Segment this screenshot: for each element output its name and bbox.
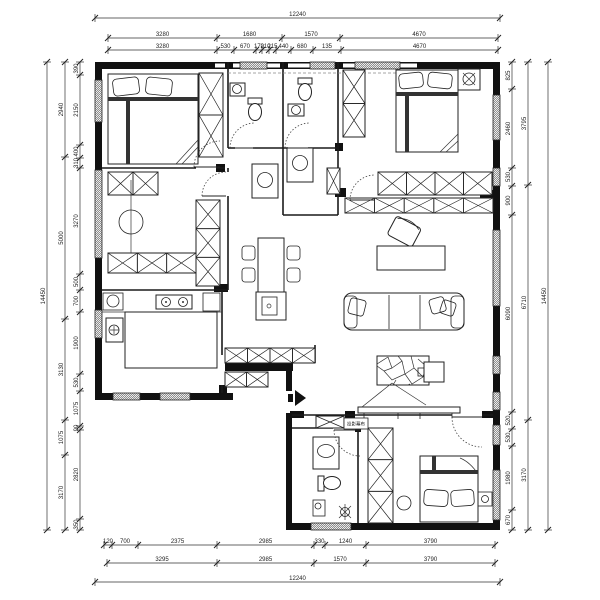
dim-label: 12240	[289, 12, 306, 18]
dimension-chain: 14450	[41, 59, 51, 533]
dim-label: 4670	[413, 44, 427, 50]
dimension-chain: 825246053090060905205301980670	[506, 59, 516, 533]
dim-label: 700	[74, 295, 80, 306]
dim-label: 135	[322, 44, 333, 50]
dim-label: 530	[220, 44, 231, 50]
dim-label: 2150	[74, 103, 80, 117]
bedroom-bottom-right	[397, 456, 492, 522]
dimension-chain: 1207002375298533012403790	[101, 539, 498, 549]
dim-label: 825	[506, 70, 512, 81]
dim-label: 670	[240, 44, 251, 50]
dimension-chain: 29405000313010753170	[59, 59, 69, 533]
dim-label: 1240	[339, 539, 353, 545]
dim-label: 3295	[155, 557, 169, 563]
dining-set	[242, 238, 300, 320]
dim-label: 700	[120, 539, 131, 545]
dimension-chain: 12240	[92, 576, 503, 586]
dim-label: 6090	[506, 306, 512, 320]
bedroom-top-left	[108, 74, 198, 164]
dim-label: 2460	[506, 121, 512, 135]
equipment-label: 投影幕布	[347, 421, 365, 428]
dim-label: 2940	[59, 102, 65, 116]
dim-label: 3270	[74, 214, 80, 228]
dimension-chain: 3902150400310327050070019005301075902820…	[74, 59, 84, 533]
dim-label: 1980	[506, 471, 512, 485]
dim-label: 1075	[59, 430, 65, 444]
dimension-chain: 3280168015704670	[105, 32, 501, 42]
bathroom-a	[230, 83, 262, 121]
dim-label: 350	[74, 519, 80, 530]
dim-label: 6710	[522, 295, 528, 309]
dim-label: 90	[74, 424, 80, 431]
dim-label: 2985	[259, 557, 273, 563]
dim-label: 530	[74, 377, 80, 388]
dim-label: 670	[506, 514, 512, 525]
dim-label: 215	[267, 44, 278, 50]
tv-wall	[358, 356, 460, 419]
dimension-chain: 379567103170	[522, 59, 532, 533]
dim-label: 120	[103, 539, 114, 545]
dim-label: 3790	[424, 557, 438, 563]
dimension-chain: 32805306701702102154406801354670	[105, 44, 501, 54]
dim-label: 3130	[59, 362, 65, 376]
dim-label: 14450	[542, 287, 548, 304]
equipment-annotation: 投影幕布	[344, 418, 368, 429]
dim-label: 14450	[41, 287, 47, 304]
living-room	[344, 214, 464, 330]
kitchen	[102, 293, 222, 368]
bathroom-b	[288, 78, 312, 116]
dim-label: 12240	[289, 576, 306, 582]
dim-label: 1570	[333, 557, 347, 563]
floorplan-canvas: 投影幕布 1224032801680157046	[0, 0, 600, 600]
dim-label: 3790	[424, 539, 438, 545]
dim-label: 4670	[412, 32, 426, 38]
dim-label: 2820	[74, 467, 80, 481]
dim-label: 3170	[59, 485, 65, 499]
bathroom-lower	[313, 437, 351, 520]
bedroom-top-right	[396, 69, 480, 152]
dim-label: 2985	[259, 539, 273, 545]
dim-label: 3170	[522, 468, 528, 482]
dim-label: 5000	[59, 231, 65, 245]
dim-label: 680	[297, 44, 308, 50]
dimension-chain: 14450	[542, 59, 552, 533]
floorplan-drawing: 投影幕布 1224032801680157046	[0, 0, 600, 600]
dim-label: 3280	[156, 32, 170, 38]
dim-label: 1075	[74, 401, 80, 415]
dim-label: 440	[278, 44, 289, 50]
dim-label: 390	[74, 63, 80, 74]
dim-label: 1570	[304, 32, 318, 38]
dimension-chain: 12240	[92, 12, 503, 22]
dim-label: 900	[506, 195, 512, 206]
dim-label: 520	[506, 415, 512, 426]
dim-label: 3280	[156, 44, 170, 50]
dim-label: 530	[506, 432, 512, 443]
dim-label: 2375	[171, 539, 185, 545]
dim-label: 330	[314, 539, 325, 545]
dim-label: 3795	[522, 116, 528, 130]
dim-label: 310	[74, 157, 80, 168]
dim-label: 530	[506, 171, 512, 182]
dimension-chain: 3295298515703790	[104, 557, 498, 567]
entry-arrow	[288, 390, 306, 406]
dim-label: 1900	[74, 336, 80, 350]
dim-label: 1680	[243, 32, 257, 38]
dim-label: 500	[74, 276, 80, 287]
dim-label: 400	[74, 146, 80, 157]
